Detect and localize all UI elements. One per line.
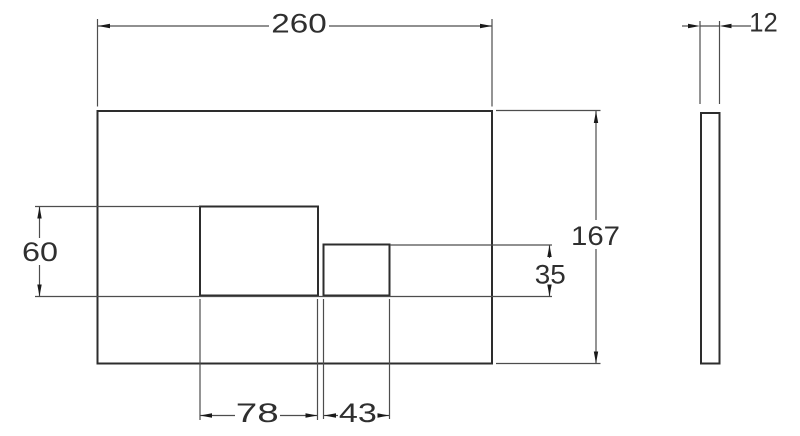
svg-text:260: 260 [271,9,327,39]
svg-text:78: 78 [236,398,279,428]
svg-text:12: 12 [749,8,778,38]
svg-text:43: 43 [339,398,377,428]
svg-text:167: 167 [571,221,620,251]
svg-text:35: 35 [535,260,566,290]
svg-text:60: 60 [22,237,58,267]
